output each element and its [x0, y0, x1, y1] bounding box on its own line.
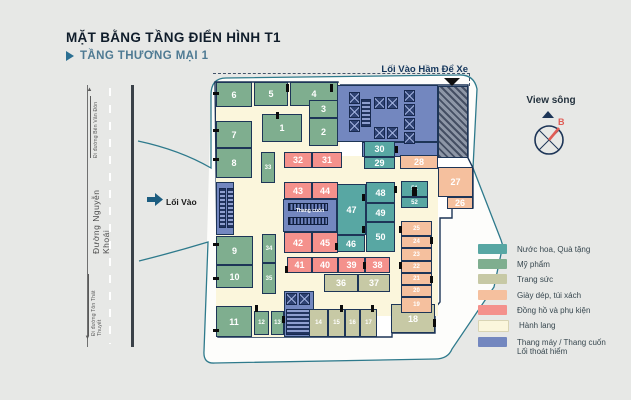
- unit-49: 49: [366, 203, 395, 222]
- entrance-arrow-icon: [147, 193, 163, 206]
- legend-label: Trang sức: [517, 274, 553, 284]
- legend-item-green: Mỹ phẩm: [478, 259, 606, 269]
- unit-20: 20: [401, 285, 432, 297]
- road-direction-bottom: Đi đường Tôn Thất Thuyết: [91, 274, 103, 336]
- unit-46: 46: [337, 235, 365, 252]
- parking-entrance-label: Lối Vào Hầm Để Xe: [352, 64, 468, 75]
- unit-11: 11: [216, 306, 252, 337]
- unit-36: 36: [324, 274, 358, 292]
- unit-52: 52: [401, 197, 428, 208]
- elevator-icon: [404, 132, 415, 144]
- unit-48: 48: [366, 182, 395, 203]
- door-marker: [363, 262, 366, 269]
- elevator-icon: [387, 97, 398, 109]
- door-marker: [430, 237, 433, 244]
- unit-29: 29: [364, 157, 395, 169]
- page-subtitle: TẦNG THƯƠNG MẠI 1: [80, 50, 208, 62]
- door-marker: [213, 129, 219, 132]
- unit-5: 5: [254, 82, 288, 106]
- unit-15: 15: [328, 309, 345, 337]
- unit-44: 44: [312, 182, 338, 199]
- unit-23: 23: [401, 248, 432, 261]
- elevator-icon: [349, 120, 360, 132]
- road-edge: [131, 85, 134, 347]
- legend-swatch: [478, 320, 509, 332]
- unit-26: 26: [447, 197, 473, 209]
- elevator-icon: [387, 127, 398, 139]
- stair-treads: [361, 99, 371, 127]
- unit-40: 40: [312, 257, 338, 273]
- door-marker: [362, 226, 365, 233]
- door-marker: [213, 277, 219, 280]
- elevator-icon: [374, 97, 385, 109]
- unit-19: 19: [401, 297, 432, 313]
- legend-label: Thang máy / Thang cuốnLối thoát hiểm: [517, 337, 606, 356]
- unit-35: 35: [262, 263, 276, 294]
- door-marker: [255, 305, 258, 312]
- legend-item-pink: Đồng hồ và phụ kiện: [478, 305, 606, 315]
- unit-25: 25: [401, 221, 432, 236]
- unit-39: 39: [338, 257, 365, 273]
- unit-42: 42: [284, 232, 312, 253]
- unit-41: 41: [287, 257, 312, 273]
- parking-arrow-down-icon: [444, 78, 460, 86]
- elevator-icon: [299, 293, 310, 305]
- stair-treads: [219, 188, 226, 228]
- door-marker: [362, 194, 365, 201]
- unit-43: 43: [284, 182, 312, 199]
- unit-50: 50: [366, 222, 395, 252]
- unit-10: 10: [216, 265, 253, 288]
- road-direction-top: Đi đường Bến Vân Đồn: [93, 96, 99, 158]
- entrance-label: Lối Vào: [166, 197, 197, 207]
- elevator-icon: [349, 92, 360, 104]
- unit-27: 27: [438, 167, 473, 197]
- legend: Nước hoa, Quà tặngMỹ phẩmTrang sứcGiày d…: [478, 244, 606, 356]
- compass-icon: [535, 126, 563, 154]
- unit-3: 3: [309, 100, 338, 118]
- unit-32: 32: [284, 152, 312, 168]
- river-view-label: View sông: [520, 95, 582, 106]
- legend-label: Đồng hồ và phụ kiện: [517, 305, 590, 315]
- escalator-icon: [288, 217, 328, 225]
- door-marker: [430, 276, 433, 283]
- unit-33: 33: [261, 152, 275, 183]
- door-marker: [286, 84, 289, 92]
- door-marker: [335, 243, 338, 250]
- unit-14: 14: [309, 309, 328, 337]
- door-marker: [395, 146, 398, 153]
- legend-label: Mỹ phẩm: [517, 259, 550, 269]
- unit-38: 38: [365, 257, 390, 273]
- door-marker: [282, 316, 285, 323]
- page-title: MẶT BẰNG TẦNG ĐIỂN HÌNH T1: [66, 30, 281, 45]
- door-marker: [285, 266, 288, 273]
- unit-12: 12: [254, 311, 269, 335]
- legend-swatch: [478, 337, 507, 347]
- door-marker: [213, 243, 219, 246]
- legend-item-teal: Nước hoa, Quà tặng: [478, 244, 606, 254]
- legend-swatch: [478, 274, 507, 284]
- unit-6: 6: [216, 82, 252, 107]
- direction-arrow-line: [88, 274, 89, 336]
- unit-21: 21: [401, 273, 432, 285]
- legend-item-olive: Trang sức: [478, 274, 606, 284]
- elevator-icon: [286, 293, 297, 305]
- unit-34: 34: [262, 234, 276, 263]
- unit-16: 16: [345, 309, 360, 337]
- legend-swatch: [478, 305, 507, 315]
- door-marker: [330, 84, 333, 92]
- direction-arrow-up-icon: ▲: [87, 87, 93, 93]
- unit-8: 8: [216, 148, 252, 178]
- elevator-icon: [349, 106, 360, 118]
- door-marker: [213, 329, 219, 332]
- unit-9: 9: [216, 236, 253, 265]
- unit-31: 31: [312, 152, 342, 168]
- road-name-label: Đường Nguyễn Khoái: [91, 168, 111, 254]
- elevator-icon: [404, 118, 415, 130]
- door-marker: [371, 305, 374, 312]
- river-view-arrow-icon: [542, 111, 554, 118]
- unit-17: 17: [360, 309, 377, 337]
- legend-item-peach: Giày dép, túi xách: [478, 290, 606, 300]
- elevator-icon: [374, 127, 385, 139]
- legend-item-blue: Thang máy / Thang cuốnLối thoát hiểm: [478, 337, 606, 356]
- elevator-icon: [404, 90, 415, 102]
- legend-swatch: [478, 259, 507, 269]
- door-marker: [213, 92, 219, 95]
- legend-swatch: [478, 244, 507, 254]
- unit-13: 13: [271, 311, 284, 335]
- stair-treads: [227, 188, 234, 228]
- door-marker: [276, 112, 279, 119]
- compass-north-label: B: [558, 117, 565, 127]
- door-marker: [433, 319, 436, 327]
- page-subtitle-row: TẦNG THƯƠNG MẠI 1: [66, 50, 208, 62]
- legend-label: Hành lang: [519, 320, 555, 330]
- floorplan-page: Thang cuốn 65432178339103435111213302948…: [0, 0, 631, 400]
- unit-22: 22: [401, 261, 432, 273]
- unit-24: 24: [401, 236, 432, 248]
- direction-arrow-down-icon: ▼: [85, 335, 91, 341]
- elevator-icon: [404, 104, 415, 116]
- unit-37: 37: [358, 274, 390, 292]
- unit-30: 30: [364, 141, 395, 157]
- legend-item-cream: Hành lang: [478, 320, 606, 332]
- unit-28: 28: [400, 155, 438, 169]
- door-marker: [412, 187, 417, 196]
- lot-dashed-line: [469, 73, 470, 86]
- door-marker: [399, 226, 402, 233]
- legend-label: Giày dép, túi xách: [517, 290, 581, 300]
- direction-arrow-line: [90, 96, 91, 158]
- unit-1: 1: [262, 114, 302, 142]
- door-marker: [399, 262, 402, 269]
- parking-ramp: [438, 86, 468, 158]
- door-marker: [213, 158, 219, 161]
- unit-2: 2: [309, 118, 338, 146]
- escalator-label: Thang cuốn: [283, 208, 337, 214]
- unit-7: 7: [216, 121, 252, 148]
- door-marker: [394, 186, 397, 193]
- legend-label: Nước hoa, Quà tặng: [517, 244, 590, 254]
- door-marker: [340, 305, 343, 312]
- subtitle-arrow-icon: [66, 51, 74, 61]
- legend-swatch: [478, 290, 507, 300]
